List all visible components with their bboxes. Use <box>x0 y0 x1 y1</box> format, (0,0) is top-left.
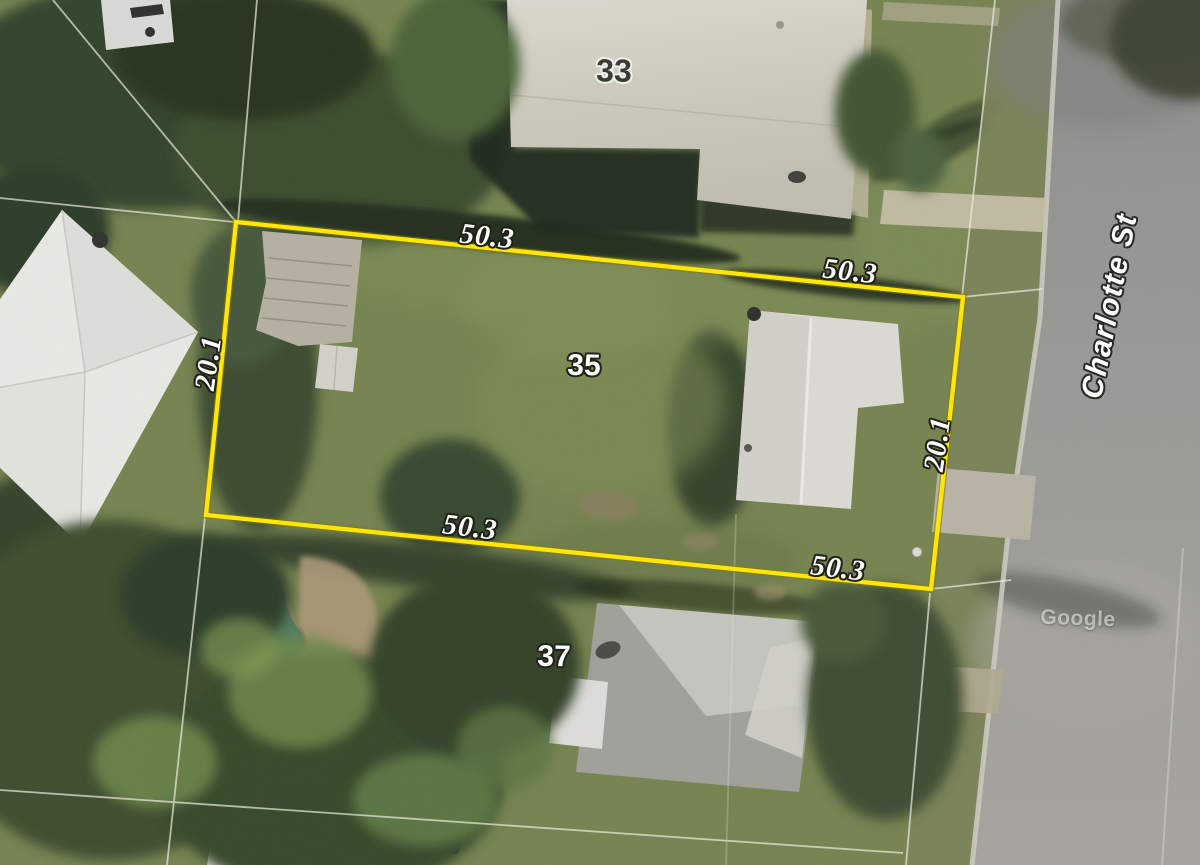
dimension-label-top-east: 50.3 <box>821 253 879 292</box>
dimension-label-top-west: 50.3 <box>458 218 516 257</box>
dimension-label-bottom-east: 50.3 <box>809 549 867 588</box>
aerial-photo <box>0 0 1200 865</box>
lot-number-33: 33 <box>596 52 632 90</box>
lot-number-35: 35 <box>567 349 601 384</box>
aerial-map: 50.3 50.3 50.3 50.3 20.1 20.1 33 35 37 C… <box>0 0 1200 865</box>
dimension-label-bottom-west: 50.3 <box>441 508 499 547</box>
lot-number-37: 37 <box>537 640 571 675</box>
google-watermark: Google <box>1040 606 1116 633</box>
photo-grain <box>0 0 1200 865</box>
